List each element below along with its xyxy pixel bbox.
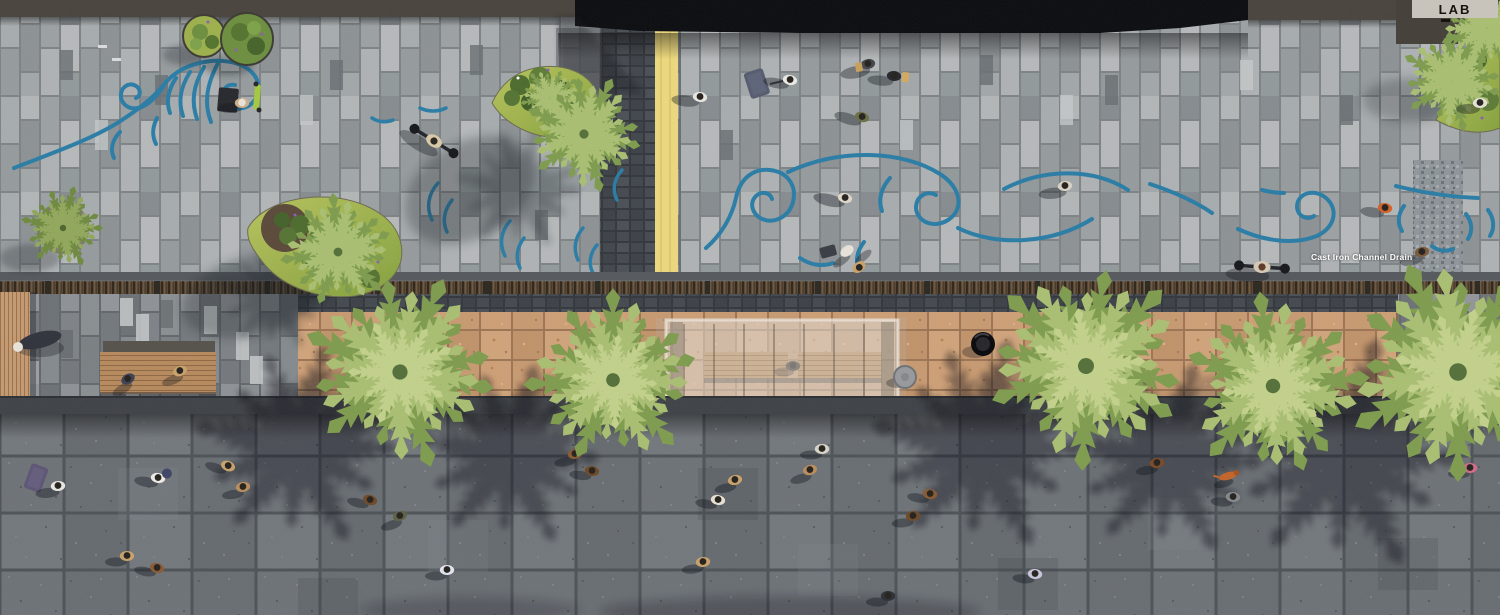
logo-text: LAB bbox=[1439, 2, 1472, 17]
grain-overlay bbox=[0, 0, 1500, 615]
streetscape-render: LAB Cast Iron Channel Drain bbox=[0, 0, 1500, 615]
logo-dash bbox=[1441, 19, 1450, 22]
scene-canvas bbox=[0, 0, 1500, 615]
drain-annotation-label: Cast Iron Channel Drain bbox=[1311, 252, 1412, 262]
logo: LAB bbox=[1412, 0, 1498, 18]
